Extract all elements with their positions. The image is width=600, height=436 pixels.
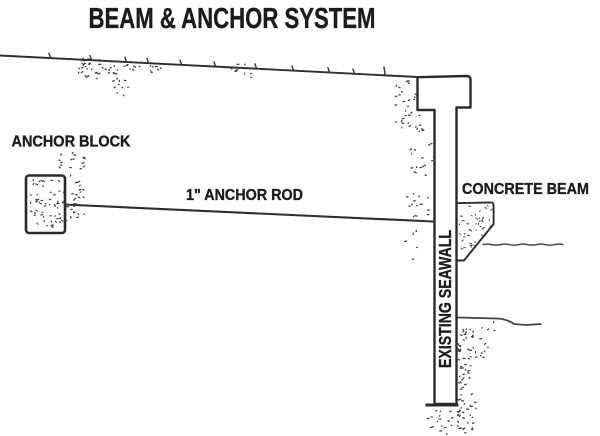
svg-text:ANCHOR BLOCK: ANCHOR BLOCK bbox=[12, 134, 131, 151]
svg-text:BEAM & ANCHOR SYSTEM: BEAM & ANCHOR SYSTEM bbox=[89, 3, 376, 35]
svg-text:1" ANCHOR ROD: 1" ANCHOR ROD bbox=[186, 187, 303, 204]
svg-text:EXISTING SEAWALL: EXISTING SEAWALL bbox=[435, 230, 455, 368]
svg-text:CONCRETE BEAM: CONCRETE BEAM bbox=[462, 181, 589, 198]
